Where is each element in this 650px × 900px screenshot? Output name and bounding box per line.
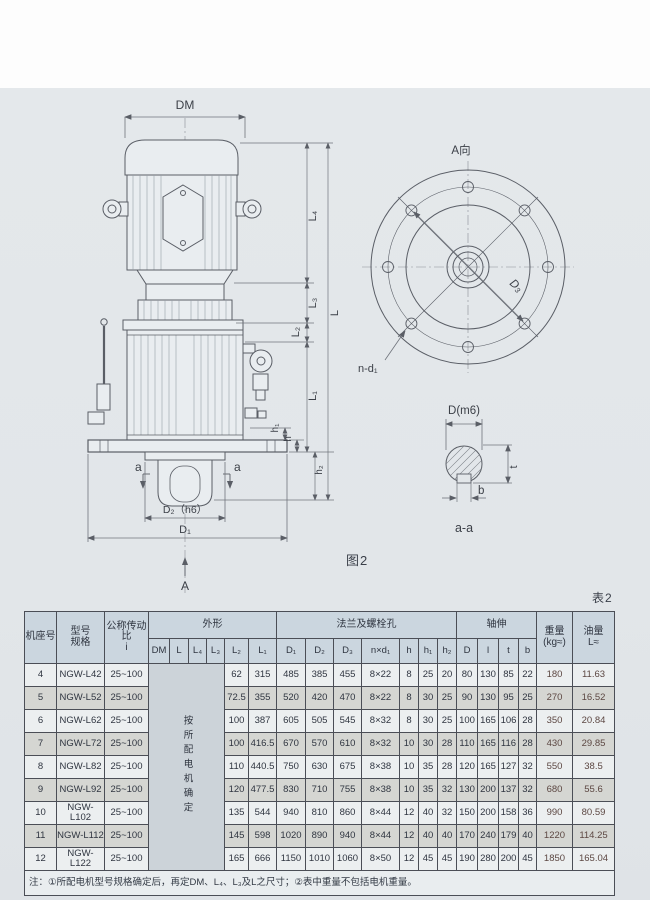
h2-label: h₂: [314, 465, 325, 475]
cell-l2: 135: [225, 802, 249, 825]
vertical-note-text: 按所配电机确定: [182, 715, 192, 817]
cell-oil: 114.25: [573, 825, 615, 848]
cell-nd1: 8×38: [362, 779, 400, 802]
cell-h2: 40: [438, 825, 457, 848]
cell-model: NGW-L102: [57, 802, 105, 825]
cell-h1: 30: [419, 733, 438, 756]
cell-d: 80: [457, 664, 478, 687]
right-elbow: [243, 344, 255, 353]
cell-h: 12: [400, 848, 419, 871]
table-row: 10NGW-L10225~1001355449408108608×4412403…: [25, 802, 615, 825]
cell-model: NGW-L92: [57, 779, 105, 802]
breather-stem: [253, 374, 268, 390]
cell-t: 158: [499, 802, 519, 825]
col-header-l1: L₁: [249, 639, 277, 664]
cell-nd1: 8×44: [362, 825, 400, 848]
col-header-model: 型号 规格: [57, 612, 105, 664]
adapter-ring: [146, 284, 224, 300]
cell-h2: 28: [438, 756, 457, 779]
cell-model: NGW-L112: [57, 825, 105, 848]
cell-oil: 16.52: [573, 687, 615, 710]
cell-h1: 30: [419, 710, 438, 733]
d2-label: D₂（h6）: [163, 504, 207, 516]
col-header-h1: h₁: [419, 639, 438, 664]
left-flange-boss: [88, 412, 104, 424]
cell-h: 8: [400, 710, 419, 733]
col-header-shaft-l: l: [478, 639, 499, 664]
cell-h2: 32: [438, 802, 457, 825]
cell-ratio: 25~100: [105, 664, 149, 687]
t-label: t: [508, 465, 520, 468]
cell-l2: 165: [225, 848, 249, 871]
cell-d1: 670: [277, 733, 306, 756]
cell-h2: 25: [438, 710, 457, 733]
left-fitting-block: [97, 384, 110, 410]
cell-l: 200: [478, 802, 499, 825]
col-header-dm: DM: [149, 639, 170, 664]
cell-h: 12: [400, 802, 419, 825]
cell-d: 190: [457, 848, 478, 871]
cell-ratio: 25~100: [105, 802, 149, 825]
col-header-shaft-d: D: [457, 639, 478, 664]
cell-ratio: 25~100: [105, 756, 149, 779]
cell-d2: 630: [306, 756, 334, 779]
cell-l1: 666: [249, 848, 277, 871]
cell-model: NGW-L82: [57, 756, 105, 779]
cell-frame: 9: [25, 779, 57, 802]
col-header-h: h: [400, 639, 419, 664]
cell-weight: 550: [537, 756, 573, 779]
group-header-flange: 法兰及螺栓孔: [277, 612, 457, 639]
cell-frame: 6: [25, 710, 57, 733]
keyway: [457, 474, 471, 483]
cell-weight: 680: [537, 779, 573, 802]
cell-l2: 120: [225, 779, 249, 802]
cell-d2: 810: [306, 802, 334, 825]
cell-weight: 350: [537, 710, 573, 733]
cell-l: 165: [478, 710, 499, 733]
nd1-label: n-d₁: [358, 363, 378, 375]
cell-b: 45: [519, 848, 537, 871]
cell-d2: 1010: [306, 848, 334, 871]
cell-d1: 750: [277, 756, 306, 779]
shaft-d-dimension: [446, 419, 482, 450]
col-header-shaft-t: t: [499, 639, 519, 664]
cell-h1: 35: [419, 756, 438, 779]
cell-h: 8: [400, 664, 419, 687]
table-row: 9NGW-L9225~100120477.58307107558×3810353…: [25, 779, 615, 802]
col-header-oil: 油量 L≈: [573, 612, 615, 664]
table-row: 5NGW-L5225~10072.53555204204708×22830259…: [25, 687, 615, 710]
cell-h: 10: [400, 779, 419, 802]
col-header-l4: L₄: [189, 639, 207, 664]
cell-ratio: 25~100: [105, 779, 149, 802]
right-bolt-boss: [245, 408, 257, 418]
cell-d: 110: [457, 733, 478, 756]
cell-d: 90: [457, 687, 478, 710]
table-row: 4NGW-L4225~100按所配电机确定623154853854558×228…: [25, 664, 615, 687]
cell-h2: 28: [438, 733, 457, 756]
group-header-outline: 外形: [149, 612, 277, 639]
d1-label: D₁: [179, 524, 191, 536]
cell-h: 12: [400, 825, 419, 848]
cell-b: 28: [519, 710, 537, 733]
cell-d: 100: [457, 710, 478, 733]
cell-d1: 830: [277, 779, 306, 802]
cell-h2: 45: [438, 848, 457, 871]
col-header-d3: D₃: [334, 639, 362, 664]
shaft-d-label: D(m6): [448, 405, 480, 417]
cell-d: 130: [457, 779, 478, 802]
col-header-l: L: [170, 639, 189, 664]
col-header-h2: h₂: [438, 639, 457, 664]
specification-table: 机座号 型号 规格 公称传动比 i 外形 法兰及螺栓孔 轴伸 重量 (kg≈) …: [24, 611, 615, 896]
eye-bolt-right: [236, 200, 261, 218]
cell-t: 85: [499, 664, 519, 687]
flange-view: A向 D₃ n-d₁: [358, 143, 574, 375]
cell-l2: 110: [225, 756, 249, 779]
section-aa-label: a-a: [455, 521, 473, 535]
section-a-left: [143, 474, 150, 488]
spigot: [145, 452, 225, 460]
cell-model: NGW-L52: [57, 687, 105, 710]
cell-l: 130: [478, 687, 499, 710]
cell-l2: 145: [225, 825, 249, 848]
l4-label: L₄: [307, 210, 319, 221]
cell-l: 165: [478, 756, 499, 779]
cell-h1: 25: [419, 664, 438, 687]
cell-d2: 890: [306, 825, 334, 848]
l2-label: L₂: [290, 327, 302, 337]
l3-label: L₃: [307, 298, 319, 309]
cell-l2: 100: [225, 710, 249, 733]
cell-frame: 12: [25, 848, 57, 871]
cell-d1: 605: [277, 710, 306, 733]
cell-t: 106: [499, 710, 519, 733]
cell-weight: 1850: [537, 848, 573, 871]
cell-l: 200: [478, 779, 499, 802]
cell-weight: 430: [537, 733, 573, 756]
cell-t: 95: [499, 687, 519, 710]
cell-l1: 416.5: [249, 733, 277, 756]
cell-model: NGW-L72: [57, 733, 105, 756]
cell-d: 170: [457, 825, 478, 848]
col-header-nd1: n×d₁: [362, 639, 400, 664]
figure-2-drawing: DM: [0, 88, 650, 610]
cell-nd1: 8×44: [362, 802, 400, 825]
cell-b: 22: [519, 664, 537, 687]
cell-d1: 940: [277, 802, 306, 825]
cell-l1: 355: [249, 687, 277, 710]
table-row: 6NGW-L6225~1001003876055055458×328302510…: [25, 710, 615, 733]
cell-d2: 570: [306, 733, 334, 756]
cell-oil: 20.84: [573, 710, 615, 733]
cell-b: 28: [519, 733, 537, 756]
cell-weight: 1220: [537, 825, 573, 848]
cell-nd1: 8×38: [362, 756, 400, 779]
cell-frame: 11: [25, 825, 57, 848]
cell-d3: 940: [334, 825, 362, 848]
cell-l1: 477.5: [249, 779, 277, 802]
stage1-ring: [138, 300, 232, 320]
cell-h1: 35: [419, 779, 438, 802]
section-a-right: [223, 474, 230, 488]
cell-l2: 72.5: [225, 687, 249, 710]
dipstick-handle: [101, 319, 107, 325]
mid-plate: [123, 320, 243, 330]
cell-oil: 38.5: [573, 756, 615, 779]
a-view-label: A: [181, 579, 189, 593]
cell-b: 40: [519, 825, 537, 848]
motor-adapter: [137, 270, 233, 284]
cell-d3: 755: [334, 779, 362, 802]
base-flange-plate: [88, 440, 287, 452]
cell-oil: 55.6: [573, 779, 615, 802]
cell-ratio: 25~100: [105, 710, 149, 733]
cell-t: 116: [499, 733, 519, 756]
cell-d2: 505: [306, 710, 334, 733]
shaft-section: D(m6) t b a-a: [434, 405, 520, 535]
cell-oil: 80.59: [573, 802, 615, 825]
cell-oil: 29.85: [573, 733, 615, 756]
cell-frame: 8: [25, 756, 57, 779]
cell-h1: 40: [419, 825, 438, 848]
cell-d2: 420: [306, 687, 334, 710]
col-header-weight: 重量 (kg≈): [537, 612, 573, 664]
cell-d1: 520: [277, 687, 306, 710]
motor-gearbox-elevation: DM: [88, 98, 341, 593]
cell-d3: 455: [334, 664, 362, 687]
scanned-catalog-page: DM: [0, 0, 650, 900]
cell-model: NGW-L122: [57, 848, 105, 871]
table-row: 11NGW-L11225~10014559810208909408×441240…: [25, 825, 615, 848]
gearbox-body: [127, 330, 243, 440]
figure-caption: 图2: [346, 550, 368, 569]
keyway-ext-lines: [457, 445, 512, 502]
cell-b: 36: [519, 802, 537, 825]
cell-weight: 270: [537, 687, 573, 710]
cell-d3: 860: [334, 802, 362, 825]
cell-ratio: 25~100: [105, 687, 149, 710]
cell-d1: 1020: [277, 825, 306, 848]
table-caption: 表2: [592, 589, 613, 606]
col-header-d2: D₂: [306, 639, 334, 664]
cell-h2: 20: [438, 664, 457, 687]
cell-d3: 1060: [334, 848, 362, 871]
h1-label: h₁: [270, 423, 281, 433]
cell-l2: 62: [225, 664, 249, 687]
section-a-left-label: a: [135, 460, 142, 474]
cell-nd1: 8×50: [362, 848, 400, 871]
cell-l: 280: [478, 848, 499, 871]
cell-l1: 440.5: [249, 756, 277, 779]
cell-l1: 387: [249, 710, 277, 733]
cell-d3: 470: [334, 687, 362, 710]
h-label: h: [283, 436, 294, 442]
dm-label: DM: [176, 98, 195, 112]
col-header-d1: D₁: [277, 639, 306, 664]
col-header-frame: 机座号: [25, 612, 57, 664]
cell-oil: 11.63: [573, 664, 615, 687]
cell-ratio: 25~100: [105, 848, 149, 871]
cell-d: 150: [457, 802, 478, 825]
cell-h: 8: [400, 687, 419, 710]
cell-h2: 25: [438, 687, 457, 710]
eye-bolt-left: [103, 200, 128, 218]
cell-h1: 45: [419, 848, 438, 871]
cell-d: 120: [457, 756, 478, 779]
output-shaft: [158, 460, 212, 506]
col-header-shaft-b: b: [519, 639, 537, 664]
cell-l1: 315: [249, 664, 277, 687]
cell-frame: 7: [25, 733, 57, 756]
cell-t: 200: [499, 848, 519, 871]
cell-nd1: 8×32: [362, 733, 400, 756]
cell-h1: 30: [419, 687, 438, 710]
col-header-ratio: 公称传动比 i: [105, 612, 149, 664]
cell-l2: 100: [225, 733, 249, 756]
cell-d3: 610: [334, 733, 362, 756]
table-row: 8NGW-L8225~100110440.57506306758×3810352…: [25, 756, 615, 779]
cell-oil: 165.04: [573, 848, 615, 871]
cell-h2: 32: [438, 779, 457, 802]
group-header-shaft: 轴伸: [457, 612, 537, 639]
cell-b: 32: [519, 779, 537, 802]
cell-nd1: 8×32: [362, 710, 400, 733]
cell-ratio: 25~100: [105, 733, 149, 756]
cell-frame: 4: [25, 664, 57, 687]
cell-b: 32: [519, 756, 537, 779]
cell-motor-dependent-note: 按所配电机确定: [149, 664, 225, 871]
cell-weight: 180: [537, 664, 573, 687]
flange-view-title: A向: [451, 143, 470, 157]
cell-frame: 10: [25, 802, 57, 825]
cell-ratio: 25~100: [105, 825, 149, 848]
cell-l1: 598: [249, 825, 277, 848]
cell-model: NGW-L42: [57, 664, 105, 687]
cell-weight: 990: [537, 802, 573, 825]
cell-d1: 485: [277, 664, 306, 687]
cell-h: 10: [400, 733, 419, 756]
col-header-l2: L₂: [225, 639, 249, 664]
terminal-box: [163, 185, 203, 251]
cell-t: 127: [499, 756, 519, 779]
d3-label: D₃: [507, 277, 525, 295]
cell-t: 179: [499, 825, 519, 848]
fan-cover: [125, 140, 238, 175]
cell-d3: 545: [334, 710, 362, 733]
cell-frame: 5: [25, 687, 57, 710]
breather-cap: [250, 350, 272, 372]
cell-nd1: 8×22: [362, 664, 400, 687]
section-a-right-label: a: [234, 460, 241, 474]
b-label: b: [478, 485, 484, 497]
cell-t: 137: [499, 779, 519, 802]
cell-d1: 1150: [277, 848, 306, 871]
cell-h: 10: [400, 756, 419, 779]
cell-model: NGW-L62: [57, 710, 105, 733]
table-footnote: 注：①所配电机型号规格确定后，再定DM、L₄、L₃及L之尺寸；②表中重量不包括电…: [25, 871, 615, 896]
cell-nd1: 8×22: [362, 687, 400, 710]
cell-d2: 385: [306, 664, 334, 687]
cell-l1: 544: [249, 802, 277, 825]
nd1-leader: [385, 331, 405, 360]
table-row: 12NGW-L12225~1001656661150101010608×5012…: [25, 848, 615, 871]
table-row: 7NGW-L7225~100100416.56705706108×3210302…: [25, 733, 615, 756]
cell-b: 25: [519, 687, 537, 710]
cell-d2: 710: [306, 779, 334, 802]
cell-l: 240: [478, 825, 499, 848]
col-header-l3: L₃: [207, 639, 225, 664]
l-label: L: [329, 310, 341, 316]
cell-l: 130: [478, 664, 499, 687]
cell-l: 165: [478, 733, 499, 756]
cell-d3: 675: [334, 756, 362, 779]
cell-h1: 40: [419, 802, 438, 825]
l1-label: L₁: [307, 391, 319, 401]
